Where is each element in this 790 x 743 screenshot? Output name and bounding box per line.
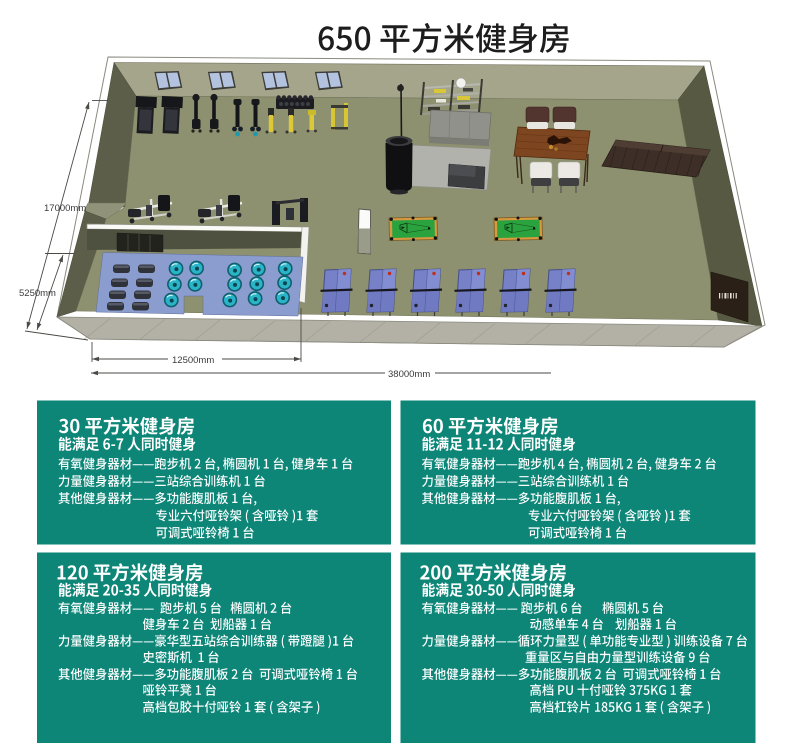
svg-text:38000mm: 38000mm xyxy=(388,369,430,380)
svg-text:17000mm: 17000mm xyxy=(44,203,86,214)
svg-text:5250mm: 5250mm xyxy=(19,288,56,299)
svg-text:12500mm: 12500mm xyxy=(172,355,214,366)
